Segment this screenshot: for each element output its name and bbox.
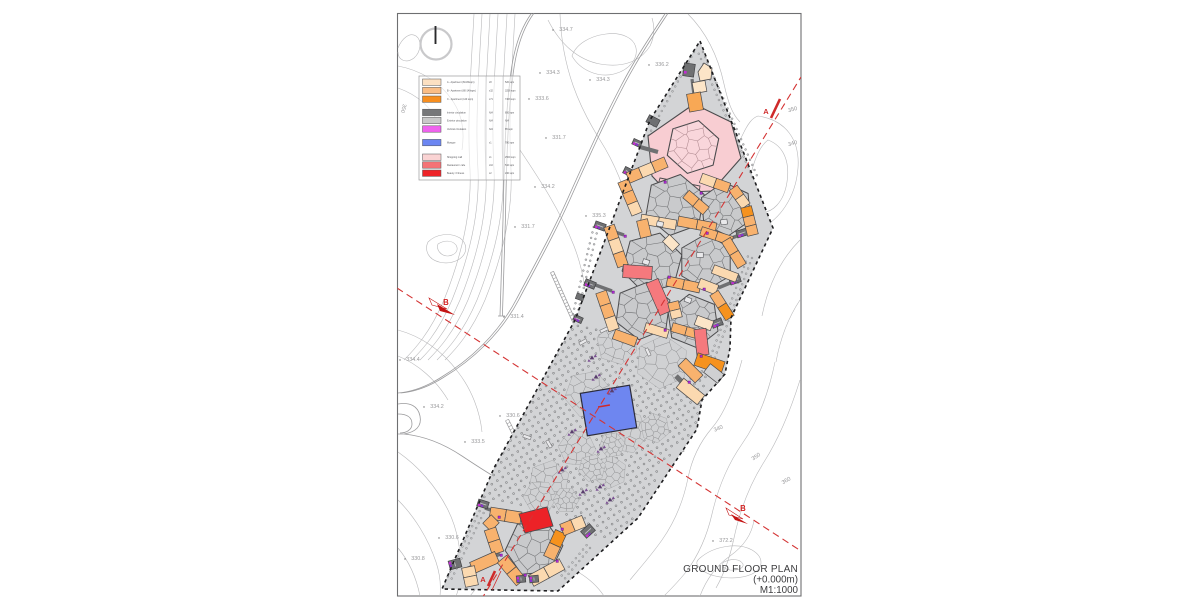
svg-text:334.3: 334.3 bbox=[546, 70, 560, 76]
svg-text:x10: x10 bbox=[489, 164, 494, 167]
svg-text:M1:1000: M1:1000 bbox=[760, 585, 799, 596]
svg-text:3256 sqm: 3256 sqm bbox=[505, 90, 516, 93]
svg-text:(+0.000m): (+0.000m) bbox=[753, 575, 798, 586]
svg-text:N/A: N/A bbox=[489, 111, 493, 114]
svg-text:334.2: 334.2 bbox=[541, 184, 555, 190]
svg-text:B - Apartment (80-140sqm): B - Apartment (80-140sqm) bbox=[447, 90, 476, 93]
svg-text:7403 sqm: 7403 sqm bbox=[505, 98, 516, 101]
svg-text:Restaurant / cafe: Restaurant / cafe bbox=[447, 164, 466, 167]
svg-text:520 sqm: 520 sqm bbox=[505, 81, 514, 84]
svg-text:Exterior circulation: Exterior circulation bbox=[447, 119, 467, 122]
svg-text:372.2: 372.2 bbox=[719, 538, 733, 544]
svg-text:Mosque: Mosque bbox=[447, 142, 456, 145]
svg-text:85 sqm: 85 sqm bbox=[505, 128, 513, 131]
svg-text:N/A: N/A bbox=[505, 119, 509, 122]
svg-text:C - Apartment (140 sqm): C - Apartment (140 sqm) bbox=[447, 98, 473, 101]
svg-text:x32: x32 bbox=[489, 90, 494, 93]
svg-text:850 sqm: 850 sqm bbox=[505, 111, 514, 114]
svg-text:335.3: 335.3 bbox=[592, 213, 606, 219]
svg-text:330.6: 330.6 bbox=[506, 413, 520, 419]
svg-text:333.6: 333.6 bbox=[535, 96, 549, 102]
svg-text:334.4: 334.4 bbox=[406, 357, 420, 363]
svg-text:2500 sqm: 2500 sqm bbox=[505, 156, 516, 159]
svg-text:330.6: 330.6 bbox=[445, 535, 459, 541]
svg-text:240 sqm: 240 sqm bbox=[505, 172, 514, 175]
svg-text:Vertical circulation: Vertical circulation bbox=[447, 128, 467, 131]
svg-text:334.7: 334.7 bbox=[559, 27, 573, 33]
svg-text:331.7: 331.7 bbox=[552, 135, 566, 141]
svg-text:333.5: 333.5 bbox=[471, 439, 485, 445]
svg-text:N/A: N/A bbox=[489, 119, 493, 122]
svg-text:B: B bbox=[443, 298, 449, 307]
svg-text:330.8: 330.8 bbox=[411, 556, 425, 562]
svg-text:A - Apartment (60-80sqm): A - Apartment (60-80sqm) bbox=[447, 81, 475, 84]
svg-text:Beauty / Fitness: Beauty / Fitness bbox=[447, 172, 465, 175]
svg-text:GROUND FLOOR PLAN: GROUND FLOOR PLAN bbox=[683, 564, 798, 575]
svg-text:331.7: 331.7 bbox=[521, 224, 535, 230]
svg-text:A: A bbox=[763, 107, 769, 116]
svg-text:x71: x71 bbox=[489, 98, 494, 101]
svg-text:510 sqm: 510 sqm bbox=[505, 164, 514, 167]
svg-text:780 sqm: 780 sqm bbox=[505, 142, 514, 145]
svg-text:334.3: 334.3 bbox=[596, 77, 610, 83]
svg-text:Interior circulation: Interior circulation bbox=[447, 111, 467, 114]
svg-text:334.2: 334.2 bbox=[430, 404, 444, 410]
svg-text:331.4: 331.4 bbox=[510, 314, 524, 320]
svg-text:N/A: N/A bbox=[489, 128, 493, 131]
svg-text:B: B bbox=[740, 504, 746, 513]
svg-text:A: A bbox=[480, 575, 486, 584]
svg-text:336.2: 336.2 bbox=[655, 62, 669, 68]
svg-text:Shopping mall: Shopping mall bbox=[447, 156, 463, 159]
